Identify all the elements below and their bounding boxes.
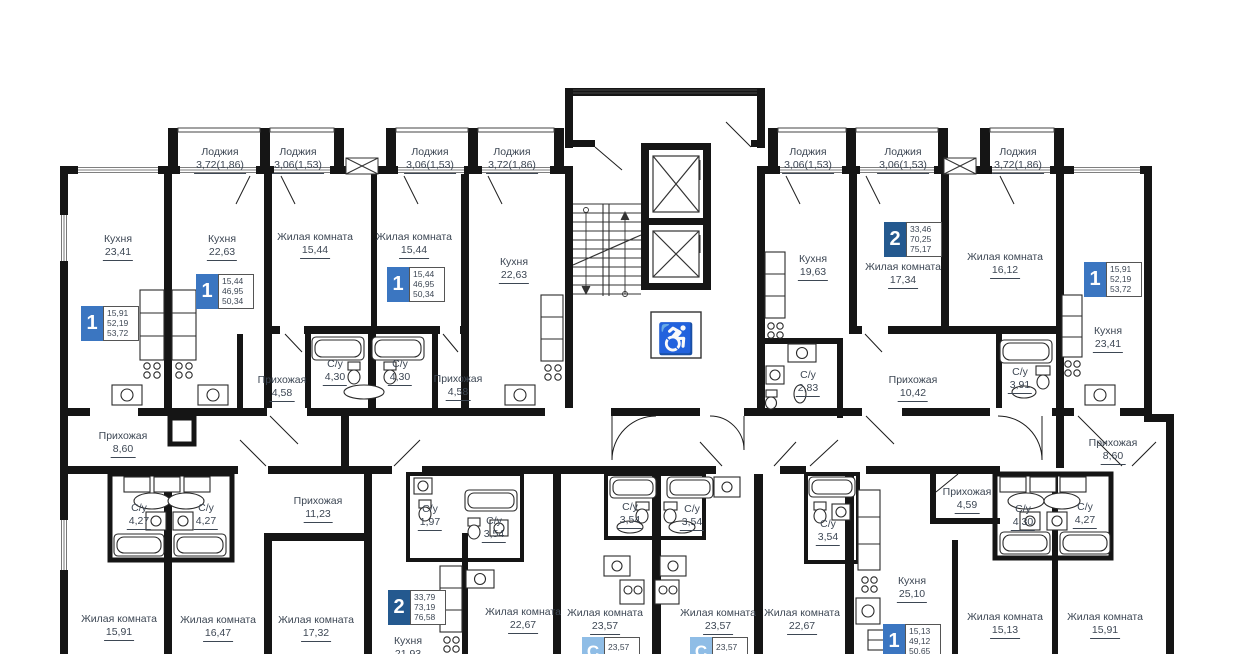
apartment-badge[interactable]: 1 15,9152,1953,72 — [81, 306, 139, 341]
room-label: С/у3,54 — [816, 518, 840, 546]
room-label: Жилая комната15,91 — [1067, 611, 1143, 639]
apartment-badge[interactable]: 1 15,4446,9550,34 — [196, 274, 254, 309]
room-label: Жилая комната17,34 — [865, 261, 941, 289]
room-label: С/у4,27 — [127, 502, 151, 530]
floor-plan-drawing: ♿ — [0, 0, 1250, 654]
room-label: Прихожая4,58 — [258, 374, 307, 402]
room-label: С/у3,54 — [680, 503, 704, 531]
room-label: Жилая комната17,32 — [278, 614, 354, 642]
apartment-number: 1 — [883, 624, 905, 654]
room-label: Прихожая11,23 — [294, 495, 343, 523]
accessible-area: ♿ — [651, 312, 701, 358]
room-label: Кухня22,63 — [499, 256, 529, 284]
room-label: Лоджия3,72(1,86) — [992, 146, 1044, 174]
apartment-areas: 15,9152,1953,72 — [103, 306, 139, 341]
room-label: Жилая комната15,44 — [277, 231, 353, 259]
apartment-areas: 15,4446,9550,34 — [218, 274, 254, 309]
room-label: Кухня23,41 — [103, 233, 133, 261]
apartment-badge[interactable]: 1 15,4446,9550,34 — [387, 267, 445, 302]
apartment-number: С — [690, 637, 712, 654]
room-label: С/у2,83 — [796, 369, 820, 397]
door-openings — [90, 326, 1120, 474]
apartment-number: 1 — [1084, 262, 1106, 297]
room-label: С/у3,54 — [618, 501, 642, 529]
floor-plan: ♿ — [0, 0, 1250, 654]
room-label: Прихожая8,60 — [1089, 437, 1138, 465]
room-label: Кухня21,93 — [393, 635, 423, 654]
apartment-badge[interactable]: 1 15,9152,1953,72 — [1084, 262, 1142, 297]
loggia-glazing — [178, 128, 1054, 132]
room-label: С/у4,27 — [194, 502, 218, 530]
fixtures — [112, 252, 1115, 652]
apartment-areas: 15,4446,9550,34 — [409, 267, 445, 302]
apartment-areas: 23,5727,11 — [604, 637, 640, 654]
room-label: Жилая комната23,57 — [567, 607, 643, 635]
apartment-areas: 23,5727,11 — [712, 637, 748, 654]
apartment-number: 1 — [196, 274, 218, 309]
room-label: Кухня25,10 — [897, 575, 927, 603]
room-label: Прихожая4,59 — [943, 486, 992, 514]
room-label: Жилая комната16,12 — [967, 251, 1043, 279]
room-label: Жилая комната23,57 — [680, 607, 756, 635]
staircase-icon — [573, 204, 641, 297]
room-label: С/у4,27 — [1073, 501, 1097, 529]
room-label: Прихожая10,42 — [889, 374, 938, 402]
room-label: Кухня22,63 — [207, 233, 237, 261]
apartment-number: 1 — [81, 306, 103, 341]
apartment-badge[interactable]: С 23,5727,11 — [690, 637, 748, 654]
apartment-badge[interactable]: 2 33,4670,2575,17 — [884, 222, 942, 257]
room-label: С/у3,54 — [482, 515, 506, 543]
room-label: Кухня19,63 — [798, 253, 828, 281]
room-label: Лоджия3,06(1,53) — [404, 146, 456, 174]
room-label: С/у3,91 — [1008, 366, 1032, 394]
apartment-badge[interactable]: 2 33,7973,1976,58 — [388, 590, 446, 625]
apartment-areas: 33,7973,1976,58 — [410, 590, 446, 625]
room-label: Кухня23,41 — [1093, 325, 1123, 353]
apartment-number: 1 — [387, 267, 409, 302]
apartment-number: С — [582, 637, 604, 654]
room-label: С/у4,30 — [388, 358, 412, 386]
room-label: Прихожая8,60 — [99, 430, 148, 458]
apartment-number: 2 — [388, 590, 410, 625]
room-label: Жилая комната22,67 — [764, 607, 840, 635]
apartment-badge[interactable]: 1 15,1349,1250,65 — [883, 624, 941, 654]
apartment-areas: 33,4670,2575,17 — [906, 222, 942, 257]
room-label: Жилая комната22,67 — [485, 606, 561, 634]
room-label: Жилая комната15,44 — [376, 231, 452, 259]
wheelchair-icon: ♿ — [657, 321, 694, 356]
room-label: Жилая комната15,91 — [81, 613, 157, 641]
apartment-badge[interactable]: С 23,5727,11 — [582, 637, 640, 654]
elevator-core — [641, 143, 711, 290]
room-label: Жилая комната15,13 — [967, 611, 1043, 639]
room-label: Лоджия3,72(1,86) — [194, 146, 246, 174]
room-label: С/у1,97 — [418, 503, 442, 531]
elevator-shaft-icon — [653, 156, 699, 277]
room-label: С/у4,30 — [323, 358, 347, 386]
room-label: Лоджия3,72(1,86) — [486, 146, 538, 174]
room-label: Прихожая4,58 — [434, 373, 483, 401]
room-label: Лоджия3,06(1,53) — [272, 146, 324, 174]
room-label: Жилая комната16,47 — [180, 614, 256, 642]
room-label: Лоджия3,06(1,53) — [782, 146, 834, 174]
closet — [170, 418, 194, 444]
apartment-number: 2 — [884, 222, 906, 257]
apartment-areas: 15,1349,1250,65 — [905, 624, 941, 654]
apartment-areas: 15,9152,1953,72 — [1106, 262, 1142, 297]
room-label: С/у4,30 — [1011, 503, 1035, 531]
room-label: Лоджия3,06(1,53) — [877, 146, 929, 174]
